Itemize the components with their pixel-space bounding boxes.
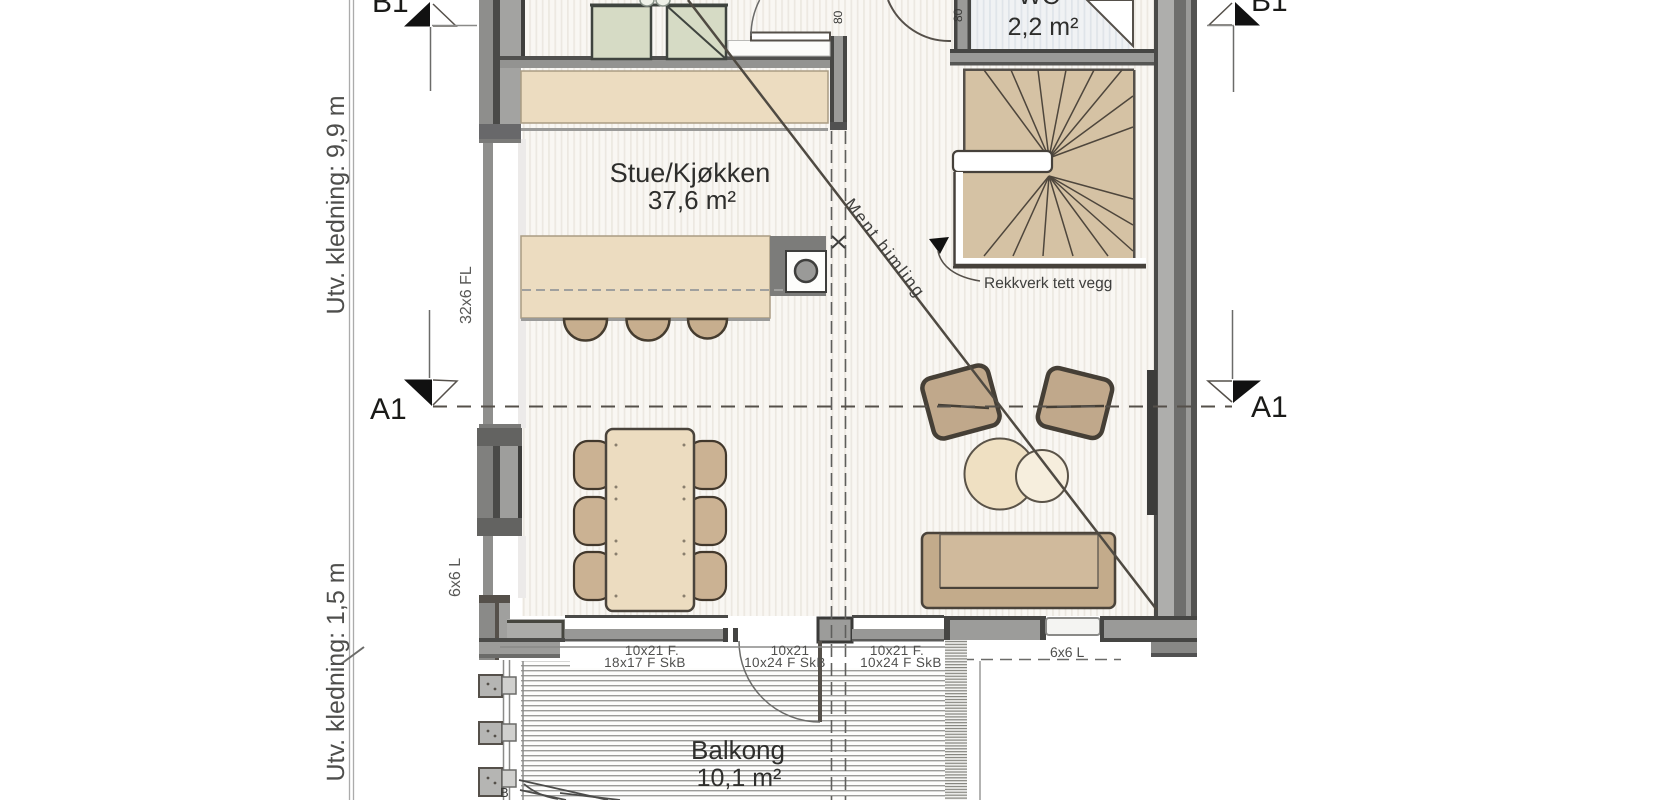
svg-text:B1: B1 bbox=[372, 0, 409, 19]
svg-text:37,6 m²: 37,6 m² bbox=[648, 185, 736, 215]
svg-text:A1: A1 bbox=[370, 393, 407, 426]
svg-text:10x24 F SkB: 10x24 F SkB bbox=[744, 655, 826, 670]
svg-text:A1: A1 bbox=[1251, 391, 1288, 424]
svg-text:80: 80 bbox=[951, 8, 965, 22]
svg-text:6x6 L: 6x6 L bbox=[1050, 644, 1084, 660]
svg-text:B1: B1 bbox=[1251, 0, 1288, 18]
svg-text:Balkong: Balkong bbox=[691, 735, 785, 765]
svg-text:Utv. kledning: 1,5 m: Utv. kledning: 1,5 m bbox=[322, 562, 350, 781]
svg-text:10,1 m²: 10,1 m² bbox=[697, 764, 782, 792]
svg-text:Stue/Kjøkken: Stue/Kjøkken bbox=[610, 158, 771, 188]
svg-text:32x6 FL: 32x6 FL bbox=[458, 266, 475, 324]
svg-text:2,2 m²: 2,2 m² bbox=[1008, 13, 1079, 41]
svg-text:Utv. kledning: 9,9 m: Utv. kledning: 9,9 m bbox=[322, 95, 350, 314]
svg-text:Rekkverk tett vegg: Rekkverk tett vegg bbox=[984, 275, 1112, 292]
svg-text:80: 80 bbox=[831, 10, 845, 24]
svg-text:WC: WC bbox=[1018, 0, 1060, 10]
svg-text:18x17 F SkB: 18x17 F SkB bbox=[604, 655, 686, 670]
svg-text:10x24 F SkB: 10x24 F SkB bbox=[860, 655, 942, 670]
svg-text:6x6 L: 6x6 L bbox=[447, 558, 464, 597]
svg-text:B: B bbox=[500, 785, 509, 800]
